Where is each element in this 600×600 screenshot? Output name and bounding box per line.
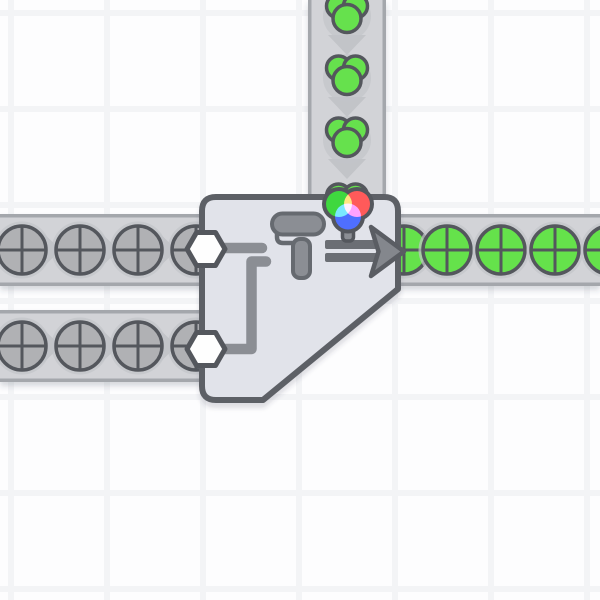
item-shape-circle-gray bbox=[110, 222, 167, 279]
item-shape-circle-gray bbox=[52, 222, 109, 279]
painter-building[interactable] bbox=[187, 197, 404, 400]
game-viewport: { "scene": { "grid": { "cell_color": "#f… bbox=[0, 0, 600, 600]
shape-input-node-upper bbox=[187, 233, 225, 266]
shape-input-node-lower bbox=[187, 333, 225, 366]
item-shape-circle-green bbox=[473, 222, 530, 279]
output-belt-right-items bbox=[376, 222, 600, 279]
item-color-green bbox=[323, 116, 371, 164]
item-color-green bbox=[323, 54, 371, 102]
item-shape-circle-green bbox=[419, 222, 476, 279]
item-shape-circle-green bbox=[527, 222, 584, 279]
factory-scene bbox=[0, 0, 600, 600]
item-shape-circle-gray bbox=[110, 318, 167, 375]
item-shape-circle-gray bbox=[52, 318, 109, 375]
